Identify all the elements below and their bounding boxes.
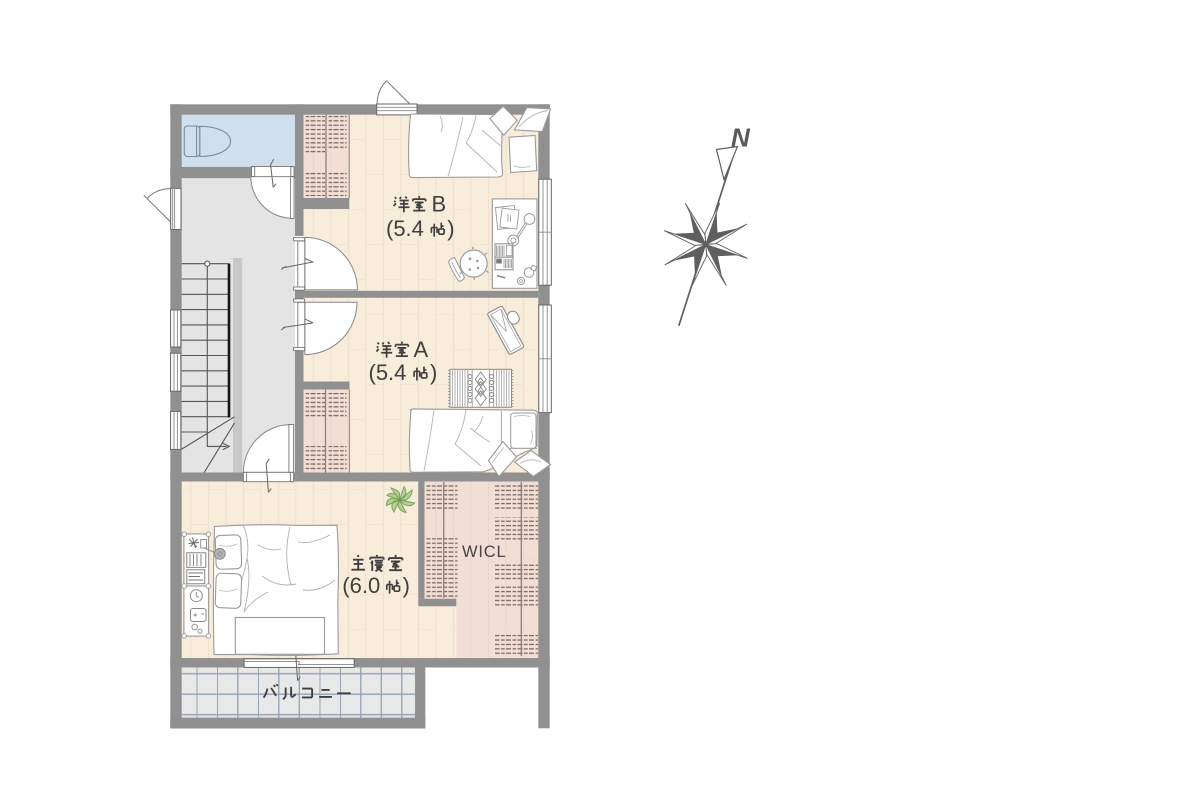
- svg-text:B: B: [432, 191, 447, 216]
- svg-text:): ): [403, 573, 410, 598]
- svg-text:): ): [430, 360, 437, 385]
- svg-text:): ): [447, 216, 454, 241]
- svg-text:(5.4: (5.4: [386, 216, 424, 241]
- svg-text:(5.4: (5.4: [369, 360, 407, 385]
- svg-text:WICL: WICL: [462, 543, 506, 561]
- svg-text:(6.0: (6.0: [342, 573, 380, 598]
- svg-text:N: N: [731, 123, 751, 153]
- svg-text:A: A: [414, 337, 429, 362]
